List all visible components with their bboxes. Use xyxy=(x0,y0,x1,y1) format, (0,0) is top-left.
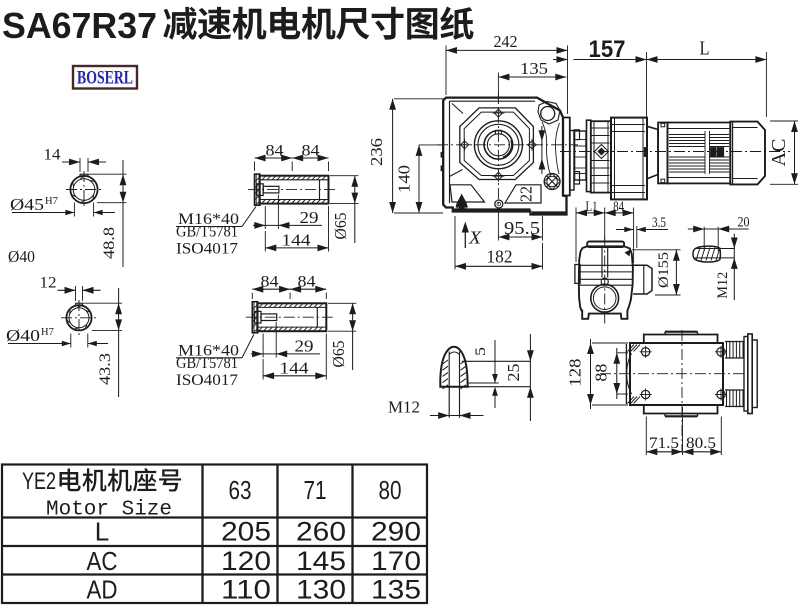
svg-text:Ø40: Ø40 xyxy=(6,326,40,345)
svg-text:5: 5 xyxy=(473,347,489,356)
svg-text:120: 120 xyxy=(221,546,271,576)
svg-text:144: 144 xyxy=(282,230,312,249)
svg-text:Ø65: Ø65 xyxy=(329,341,348,368)
svg-text:290: 290 xyxy=(371,517,421,547)
svg-text:AC: AC xyxy=(768,139,790,167)
svg-text:71.5: 71.5 xyxy=(649,435,679,452)
svg-text:140: 140 xyxy=(395,165,414,193)
svg-text:12: 12 xyxy=(40,275,57,292)
svg-text:84: 84 xyxy=(613,199,624,215)
svg-text:SA67R37: SA67R37 xyxy=(2,5,157,46)
svg-text:80.5: 80.5 xyxy=(686,435,716,452)
svg-text:48.8: 48.8 xyxy=(101,227,118,259)
svg-text:L: L xyxy=(700,38,710,60)
svg-text:145: 145 xyxy=(296,546,346,576)
svg-text:135: 135 xyxy=(371,575,421,605)
svg-text:BOSERL: BOSERL xyxy=(77,69,133,89)
svg-text:3.5: 3.5 xyxy=(652,215,666,231)
svg-text:88: 88 xyxy=(592,364,611,382)
svg-text:43.3: 43.3 xyxy=(97,353,114,385)
svg-text:Ø65: Ø65 xyxy=(331,213,350,240)
svg-text:Ø155: Ø155 xyxy=(656,252,672,288)
svg-text:170: 170 xyxy=(371,546,421,576)
svg-text:29: 29 xyxy=(300,208,319,227)
svg-text:L1: L1 xyxy=(586,199,598,215)
svg-text:22: 22 xyxy=(517,186,536,202)
svg-text:110: 110 xyxy=(221,575,271,605)
svg-text:80: 80 xyxy=(379,475,402,505)
svg-text:130: 130 xyxy=(296,575,346,605)
svg-text:YE2: YE2 xyxy=(22,468,56,495)
svg-text:14: 14 xyxy=(44,147,61,164)
svg-text:128: 128 xyxy=(566,359,585,387)
svg-text:84: 84 xyxy=(298,274,316,291)
svg-text:95.5: 95.5 xyxy=(504,218,540,238)
svg-text:M12: M12 xyxy=(388,398,420,417)
svg-text:135: 135 xyxy=(520,59,548,78)
svg-text:AD: AD xyxy=(87,575,118,605)
svg-text:Ø45: Ø45 xyxy=(10,195,44,214)
svg-text:84: 84 xyxy=(302,143,320,160)
svg-text:236: 236 xyxy=(367,138,386,166)
svg-text:ISO4017: ISO4017 xyxy=(176,372,238,389)
svg-text:H7: H7 xyxy=(45,196,58,207)
svg-text:84: 84 xyxy=(261,274,279,291)
svg-text:144: 144 xyxy=(280,358,310,377)
svg-text:20: 20 xyxy=(738,215,750,231)
svg-text:X: X xyxy=(468,228,482,248)
svg-text:205: 205 xyxy=(221,517,271,547)
svg-text:157: 157 xyxy=(589,36,626,63)
svg-text:Ø40: Ø40 xyxy=(8,247,35,266)
svg-text:M12: M12 xyxy=(715,272,731,299)
svg-text:25: 25 xyxy=(504,364,523,382)
svg-text:242: 242 xyxy=(494,32,518,51)
svg-text:ISO4017: ISO4017 xyxy=(176,241,238,258)
svg-text:260: 260 xyxy=(296,517,346,547)
svg-text:L: L xyxy=(95,517,109,547)
svg-text:H7: H7 xyxy=(41,327,54,338)
svg-text:63: 63 xyxy=(229,475,252,505)
svg-text:AC: AC xyxy=(87,546,118,576)
svg-text:84: 84 xyxy=(266,143,284,160)
svg-text:71: 71 xyxy=(304,475,327,505)
svg-text:29: 29 xyxy=(295,336,314,355)
svg-text:182: 182 xyxy=(487,246,513,266)
